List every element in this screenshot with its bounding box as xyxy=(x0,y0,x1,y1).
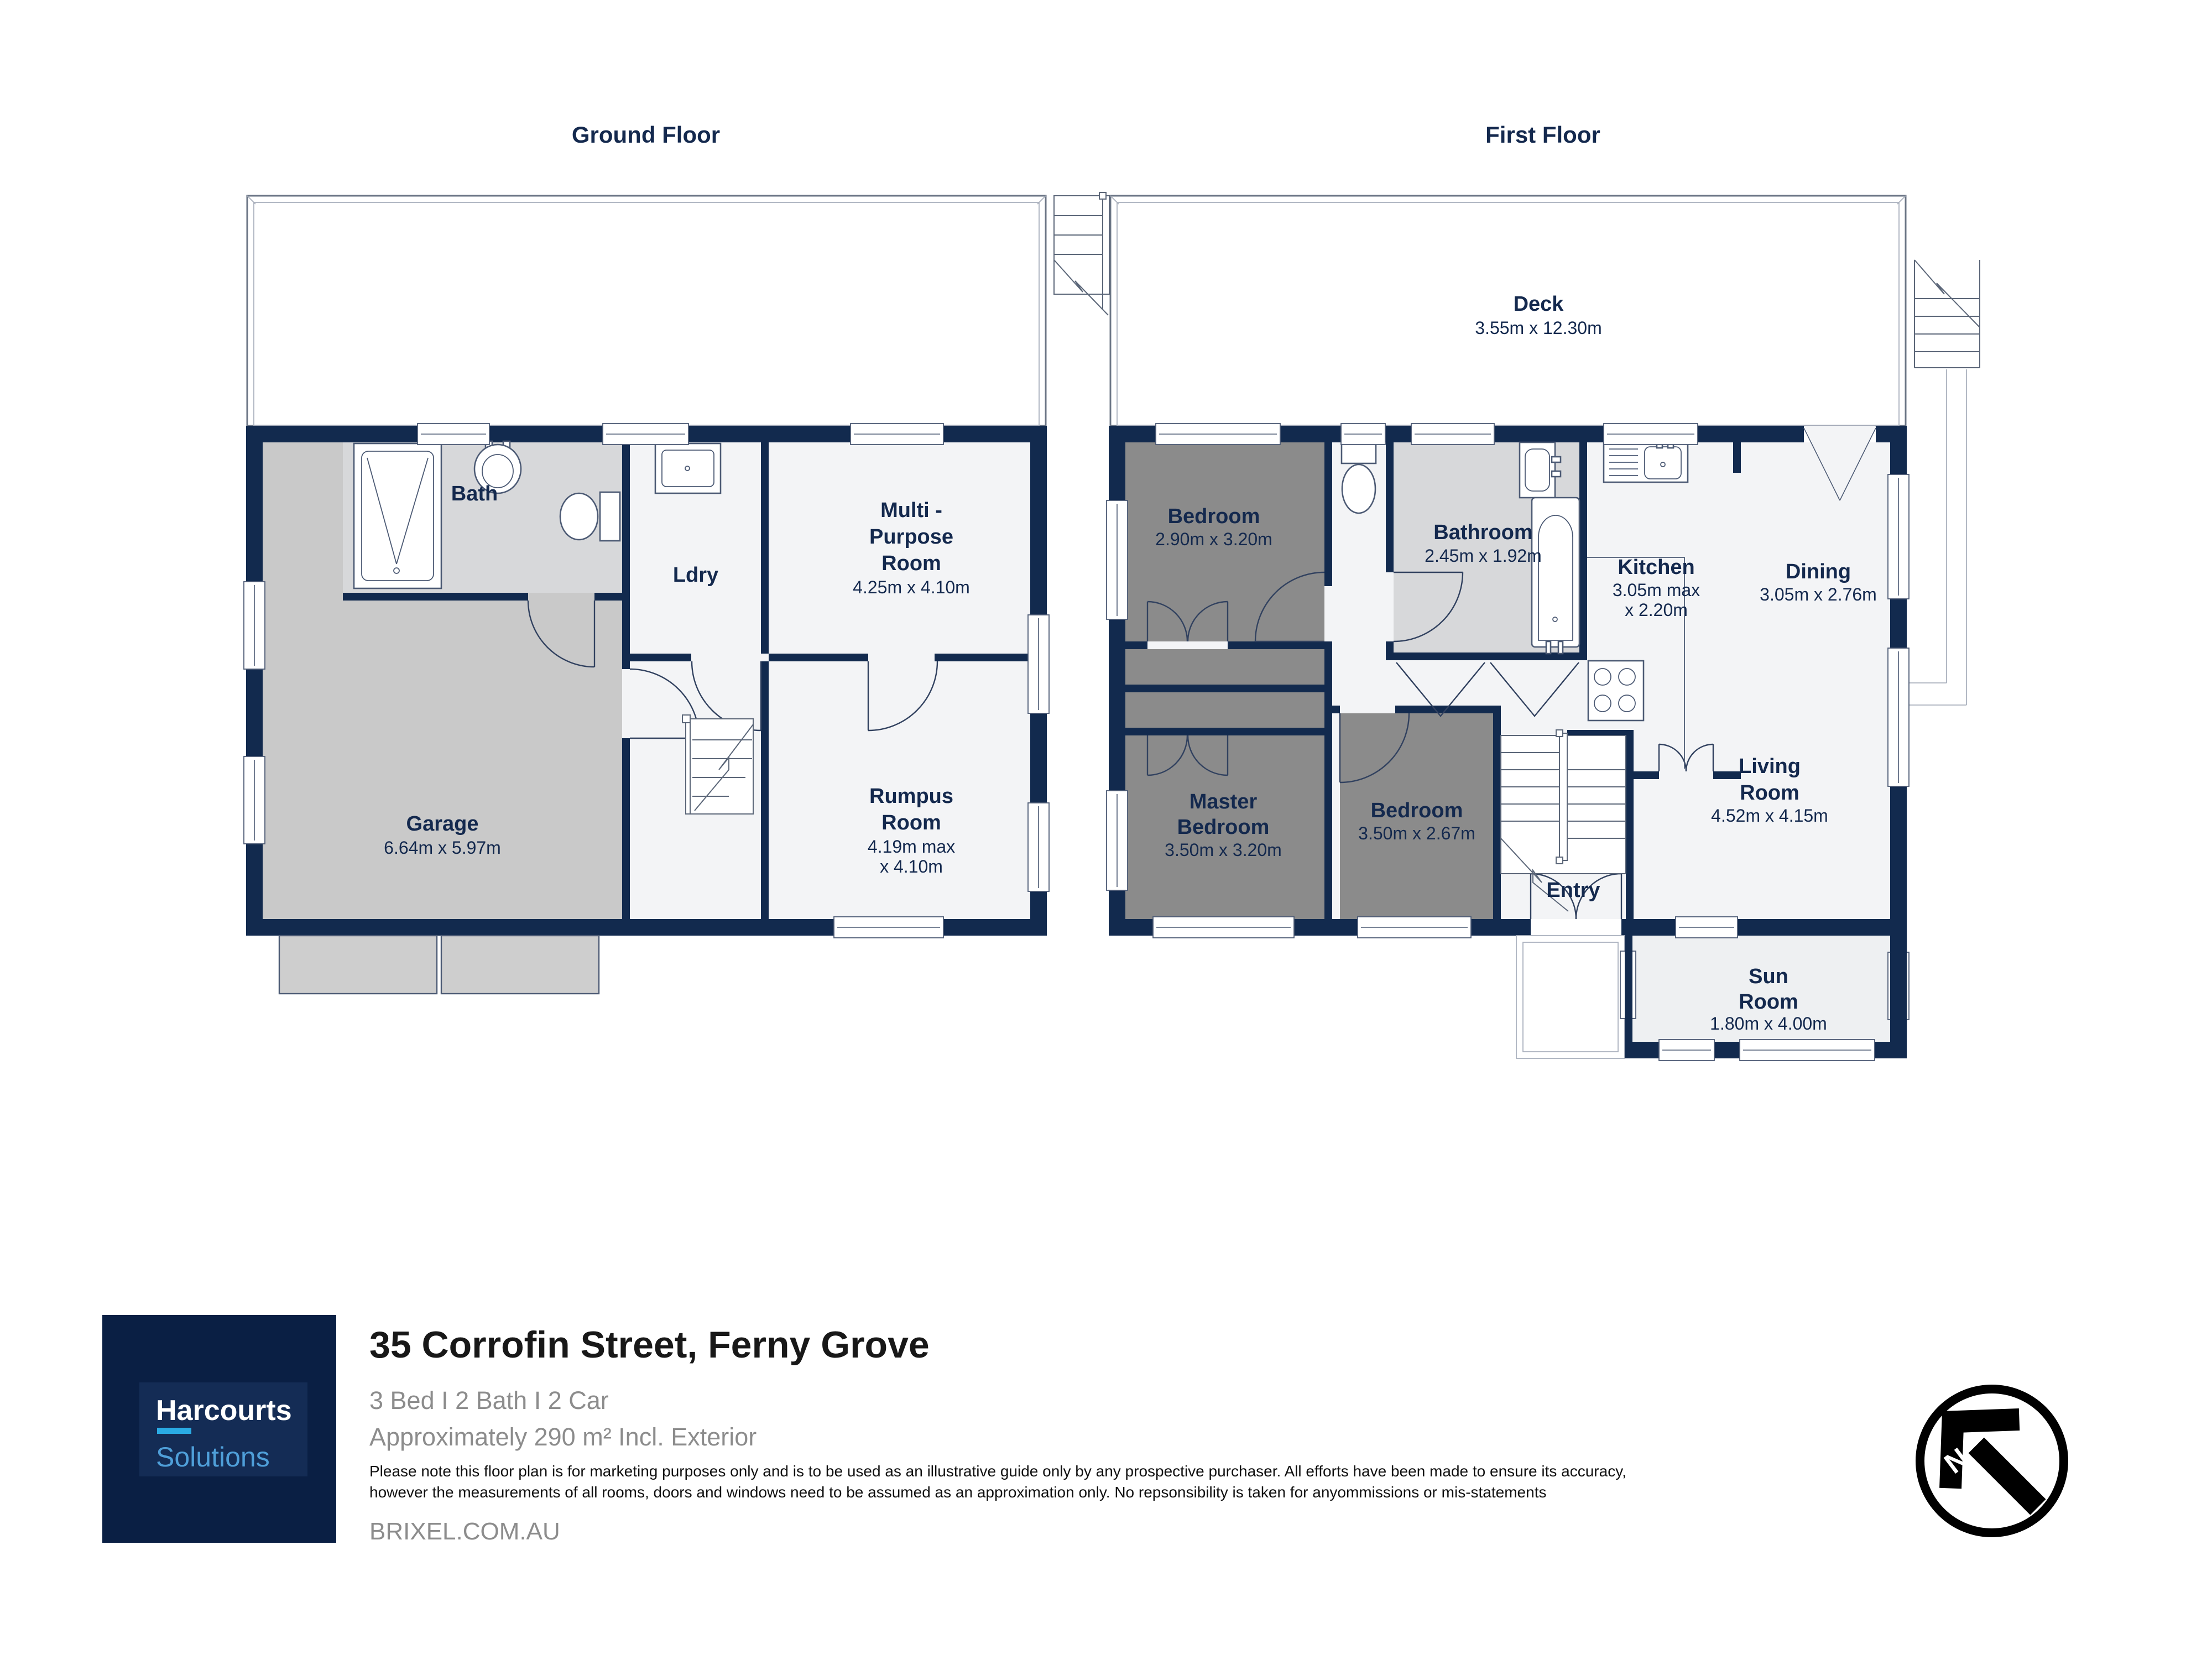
deck-stairs-right-icon xyxy=(1907,260,1980,705)
shower-icon xyxy=(354,443,441,588)
website: BRIXEL.COM.AU xyxy=(369,1518,560,1545)
svg-text:Bedroom: Bedroom xyxy=(1168,505,1260,528)
svg-text:3.05m max: 3.05m max xyxy=(1613,580,1700,600)
bedroom2-label: Bedroom 3.50m x 2.67m xyxy=(1358,799,1475,843)
laundry-sink-icon xyxy=(655,443,721,493)
deck-stairs-left-icon xyxy=(1054,192,1109,315)
svg-text:Bathroom: Bathroom xyxy=(1433,521,1532,544)
laundry-label: Ldry xyxy=(673,563,718,587)
property-summary: 3 Bed I 2 Bath I 2 Car xyxy=(369,1386,609,1414)
svg-text:4.25m x 4.10m: 4.25m x 4.10m xyxy=(853,577,970,597)
svg-text:x 2.20m: x 2.20m xyxy=(1625,600,1688,620)
svg-text:x 4.10m: x 4.10m xyxy=(880,857,943,876)
svg-text:Room: Room xyxy=(1739,990,1798,1014)
svg-text:Purpose: Purpose xyxy=(869,525,953,549)
svg-text:3.05m x 2.76m: 3.05m x 2.76m xyxy=(1760,584,1877,604)
bathtub-icon xyxy=(1532,498,1579,654)
entry-porch-outline xyxy=(1516,936,1625,1058)
svg-text:Master: Master xyxy=(1190,790,1258,813)
bathroom-sink-icon xyxy=(1520,442,1561,498)
harcourts-logo: Harcourts Solutions xyxy=(102,1315,336,1543)
first-floor-title: First Floor xyxy=(1485,122,1600,148)
ground-floor-title: Ground Floor xyxy=(572,122,720,148)
svg-text:3.50m x 2.67m: 3.50m x 2.67m xyxy=(1358,823,1475,843)
floor-plan-page: Ground Floor xyxy=(0,0,2212,1660)
svg-text:2.90m x 3.20m: 2.90m x 3.20m xyxy=(1155,529,1272,549)
svg-text:Room: Room xyxy=(1740,781,1799,805)
bath-label: Bath xyxy=(451,482,498,505)
svg-text:3.55m x 12.30m: 3.55m x 12.30m xyxy=(1475,318,1601,338)
first-deck-outline xyxy=(1110,196,1906,426)
svg-text:6.64m x 5.97m: 6.64m x 5.97m xyxy=(384,838,501,858)
bedroom1-label: Bedroom 2.90m x 3.20m xyxy=(1155,505,1272,549)
disclaimer-line-2: however the measurements of all rooms, d… xyxy=(369,1484,1546,1501)
svg-text:Garage: Garage xyxy=(406,812,479,836)
kitchen-sink-icon xyxy=(1604,439,1688,482)
ground-stairs-icon xyxy=(682,715,753,814)
svg-text:Bedroom: Bedroom xyxy=(1371,799,1463,822)
svg-text:4.19m max: 4.19m max xyxy=(868,837,955,857)
svg-text:Bedroom: Bedroom xyxy=(1177,816,1270,839)
deck-label: Deck 3.55m x 12.30m xyxy=(1475,293,1601,338)
svg-text:Kitchen: Kitchen xyxy=(1618,556,1694,579)
property-area: Approximately 290 m² Incl. Exterior xyxy=(369,1423,757,1451)
brand-accent-bar xyxy=(157,1428,191,1434)
svg-text:1.80m x 4.00m: 1.80m x 4.00m xyxy=(1710,1014,1827,1033)
kitchen-label: Kitchen 3.05m max x 2.20m xyxy=(1613,556,1700,620)
svg-text:4.52m x 4.15m: 4.52m x 4.15m xyxy=(1711,806,1828,826)
disclaimer-line-1: Please note this floor plan is for marke… xyxy=(369,1463,1626,1480)
first-floor-plan: First Floor Deck 3.55m x 12.30m xyxy=(1054,122,1980,1061)
ground-floor-plan: Ground Floor xyxy=(244,122,1049,994)
footer: Harcourts Solutions 35 Corrofin Street, … xyxy=(102,1315,2073,1545)
svg-text:Rumpus: Rumpus xyxy=(869,785,953,808)
svg-text:Sun: Sun xyxy=(1749,965,1788,988)
ground-deck-outline xyxy=(247,196,1046,426)
north-arrow-icon: N xyxy=(1918,1387,2073,1542)
garage-doors xyxy=(279,936,599,994)
brand-name: Harcourts xyxy=(156,1395,292,1427)
address-title: 35 Corrofin Street, Ferny Grove xyxy=(369,1324,930,1366)
svg-text:Deck: Deck xyxy=(1514,293,1564,316)
svg-text:Room: Room xyxy=(881,811,941,834)
svg-text:Multi -: Multi - xyxy=(880,499,942,522)
stove-icon xyxy=(1588,661,1644,721)
bathroom-label: Bathroom 2.45m x 1.92m xyxy=(1425,521,1542,566)
brand-division: Solutions xyxy=(156,1442,270,1473)
entry-label: Entry xyxy=(1546,879,1600,902)
svg-text:2.45m x 1.92m: 2.45m x 1.92m xyxy=(1425,546,1542,566)
sun-room-windows xyxy=(1659,1040,1875,1061)
ground-toilet-icon xyxy=(560,492,620,541)
svg-text:Room: Room xyxy=(881,552,941,575)
svg-text:Living: Living xyxy=(1739,755,1801,778)
svg-text:Dining: Dining xyxy=(1786,560,1851,583)
svg-text:3.50m x 3.20m: 3.50m x 3.20m xyxy=(1165,840,1282,860)
first-toilet-icon xyxy=(1342,442,1376,513)
